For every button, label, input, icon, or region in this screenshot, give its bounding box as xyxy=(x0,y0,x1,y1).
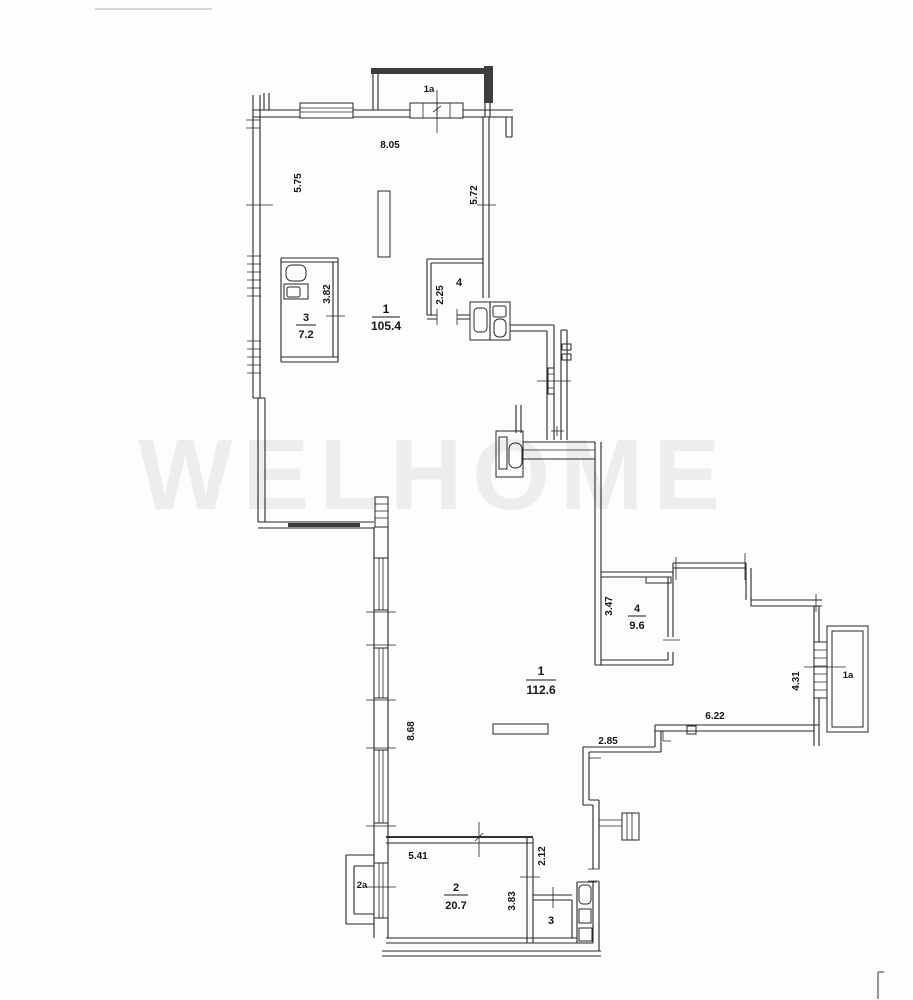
upper-top-wall xyxy=(253,110,513,117)
shaft-pillar xyxy=(622,813,639,840)
dimension-label: 2.12 xyxy=(537,846,548,866)
fixture-icon xyxy=(579,928,592,941)
dimension-label: 3.83 xyxy=(507,891,518,911)
cistern-icon xyxy=(493,306,506,317)
balcony-top-left-wall xyxy=(373,74,378,110)
room3-walls xyxy=(533,882,597,943)
door-mark xyxy=(687,726,696,734)
room-number: 3 xyxy=(548,915,554,927)
room-number: 4 xyxy=(456,277,463,289)
pillar xyxy=(375,497,388,527)
dimension-label: 6.22 xyxy=(705,711,725,722)
dimension-label: 3.47 xyxy=(604,596,615,616)
floor-plan: 1a xyxy=(0,0,913,1000)
dimension-label: 8.05 xyxy=(380,140,400,151)
pillar xyxy=(378,191,390,257)
room-area: 9.6 xyxy=(629,620,644,632)
dimension-label: 2.85 xyxy=(598,736,618,747)
window xyxy=(374,558,388,610)
toilet-icon xyxy=(509,443,522,468)
dimension-label: 2.25 xyxy=(435,285,446,305)
upper-top-right-stub xyxy=(506,117,512,137)
dimension-label: 8.68 xyxy=(406,721,417,741)
balcony-door-window xyxy=(374,863,388,918)
pillar xyxy=(493,724,548,734)
wall-fill xyxy=(288,523,360,527)
shaft-hatch xyxy=(599,813,632,840)
upper-right-wall xyxy=(483,117,489,298)
door-mark xyxy=(437,309,457,325)
sink-icon xyxy=(579,909,591,923)
dimension-label: 5.75 xyxy=(293,173,304,193)
room-number: 1 xyxy=(538,664,545,678)
cistern-icon xyxy=(499,437,507,469)
lower-unit: 3.47 4 9.6 1 112.6 8.68 6.22 2.85 4.31 1… xyxy=(346,527,868,956)
upper-room3-walls xyxy=(281,258,338,362)
room-area: 105.4 xyxy=(371,319,401,333)
wing-bottom-wall xyxy=(655,725,819,752)
step-walls xyxy=(583,747,661,951)
upper-top-wall-ticks xyxy=(264,93,269,110)
scan-artifact xyxy=(878,972,884,999)
pillar-hatch xyxy=(375,504,388,518)
dimension-label: 3.82 xyxy=(322,284,333,304)
upper-left-exterior-wall xyxy=(253,95,265,522)
window xyxy=(300,103,353,118)
entry-hall xyxy=(496,405,601,665)
balcony-top-right-wall xyxy=(484,66,493,103)
room-number: 1 xyxy=(383,302,390,316)
bottom-walls xyxy=(382,938,601,956)
door-mark xyxy=(551,426,564,436)
room-area: 7.2 xyxy=(298,329,313,341)
entry-walls xyxy=(516,405,595,459)
entry-right-wall xyxy=(595,442,601,665)
balcony-top-label: 1a xyxy=(424,84,435,95)
wing-top-wall xyxy=(673,563,822,606)
sink-basin-icon xyxy=(287,287,300,297)
room-area: 112.6 xyxy=(526,683,556,697)
toilet-icon xyxy=(494,319,506,337)
toilet-icon xyxy=(474,308,487,332)
room-number: 3 xyxy=(303,312,309,324)
dimension-label: 5.72 xyxy=(469,185,480,205)
window xyxy=(374,750,388,823)
window xyxy=(374,648,388,698)
window xyxy=(410,103,463,118)
balcony-label: 2a xyxy=(357,880,368,891)
dimension-label: 5.41 xyxy=(408,851,428,862)
corridor-walls xyxy=(510,325,567,440)
door-mark xyxy=(663,731,671,741)
room-number: 2 xyxy=(453,882,459,894)
balcony-top-slab xyxy=(371,68,490,74)
balcony-label: 1a xyxy=(843,670,854,681)
floor-plan-scan: WELHOME 1a xyxy=(0,0,913,1000)
wall-niche xyxy=(646,577,671,583)
room-area: 20.7 xyxy=(445,900,466,912)
dimension-label: 4.31 xyxy=(791,671,802,691)
dimension-tick xyxy=(475,822,540,877)
bathtub-icon xyxy=(286,265,306,281)
toilet-icon xyxy=(579,885,591,904)
room-number: 4 xyxy=(634,603,641,615)
